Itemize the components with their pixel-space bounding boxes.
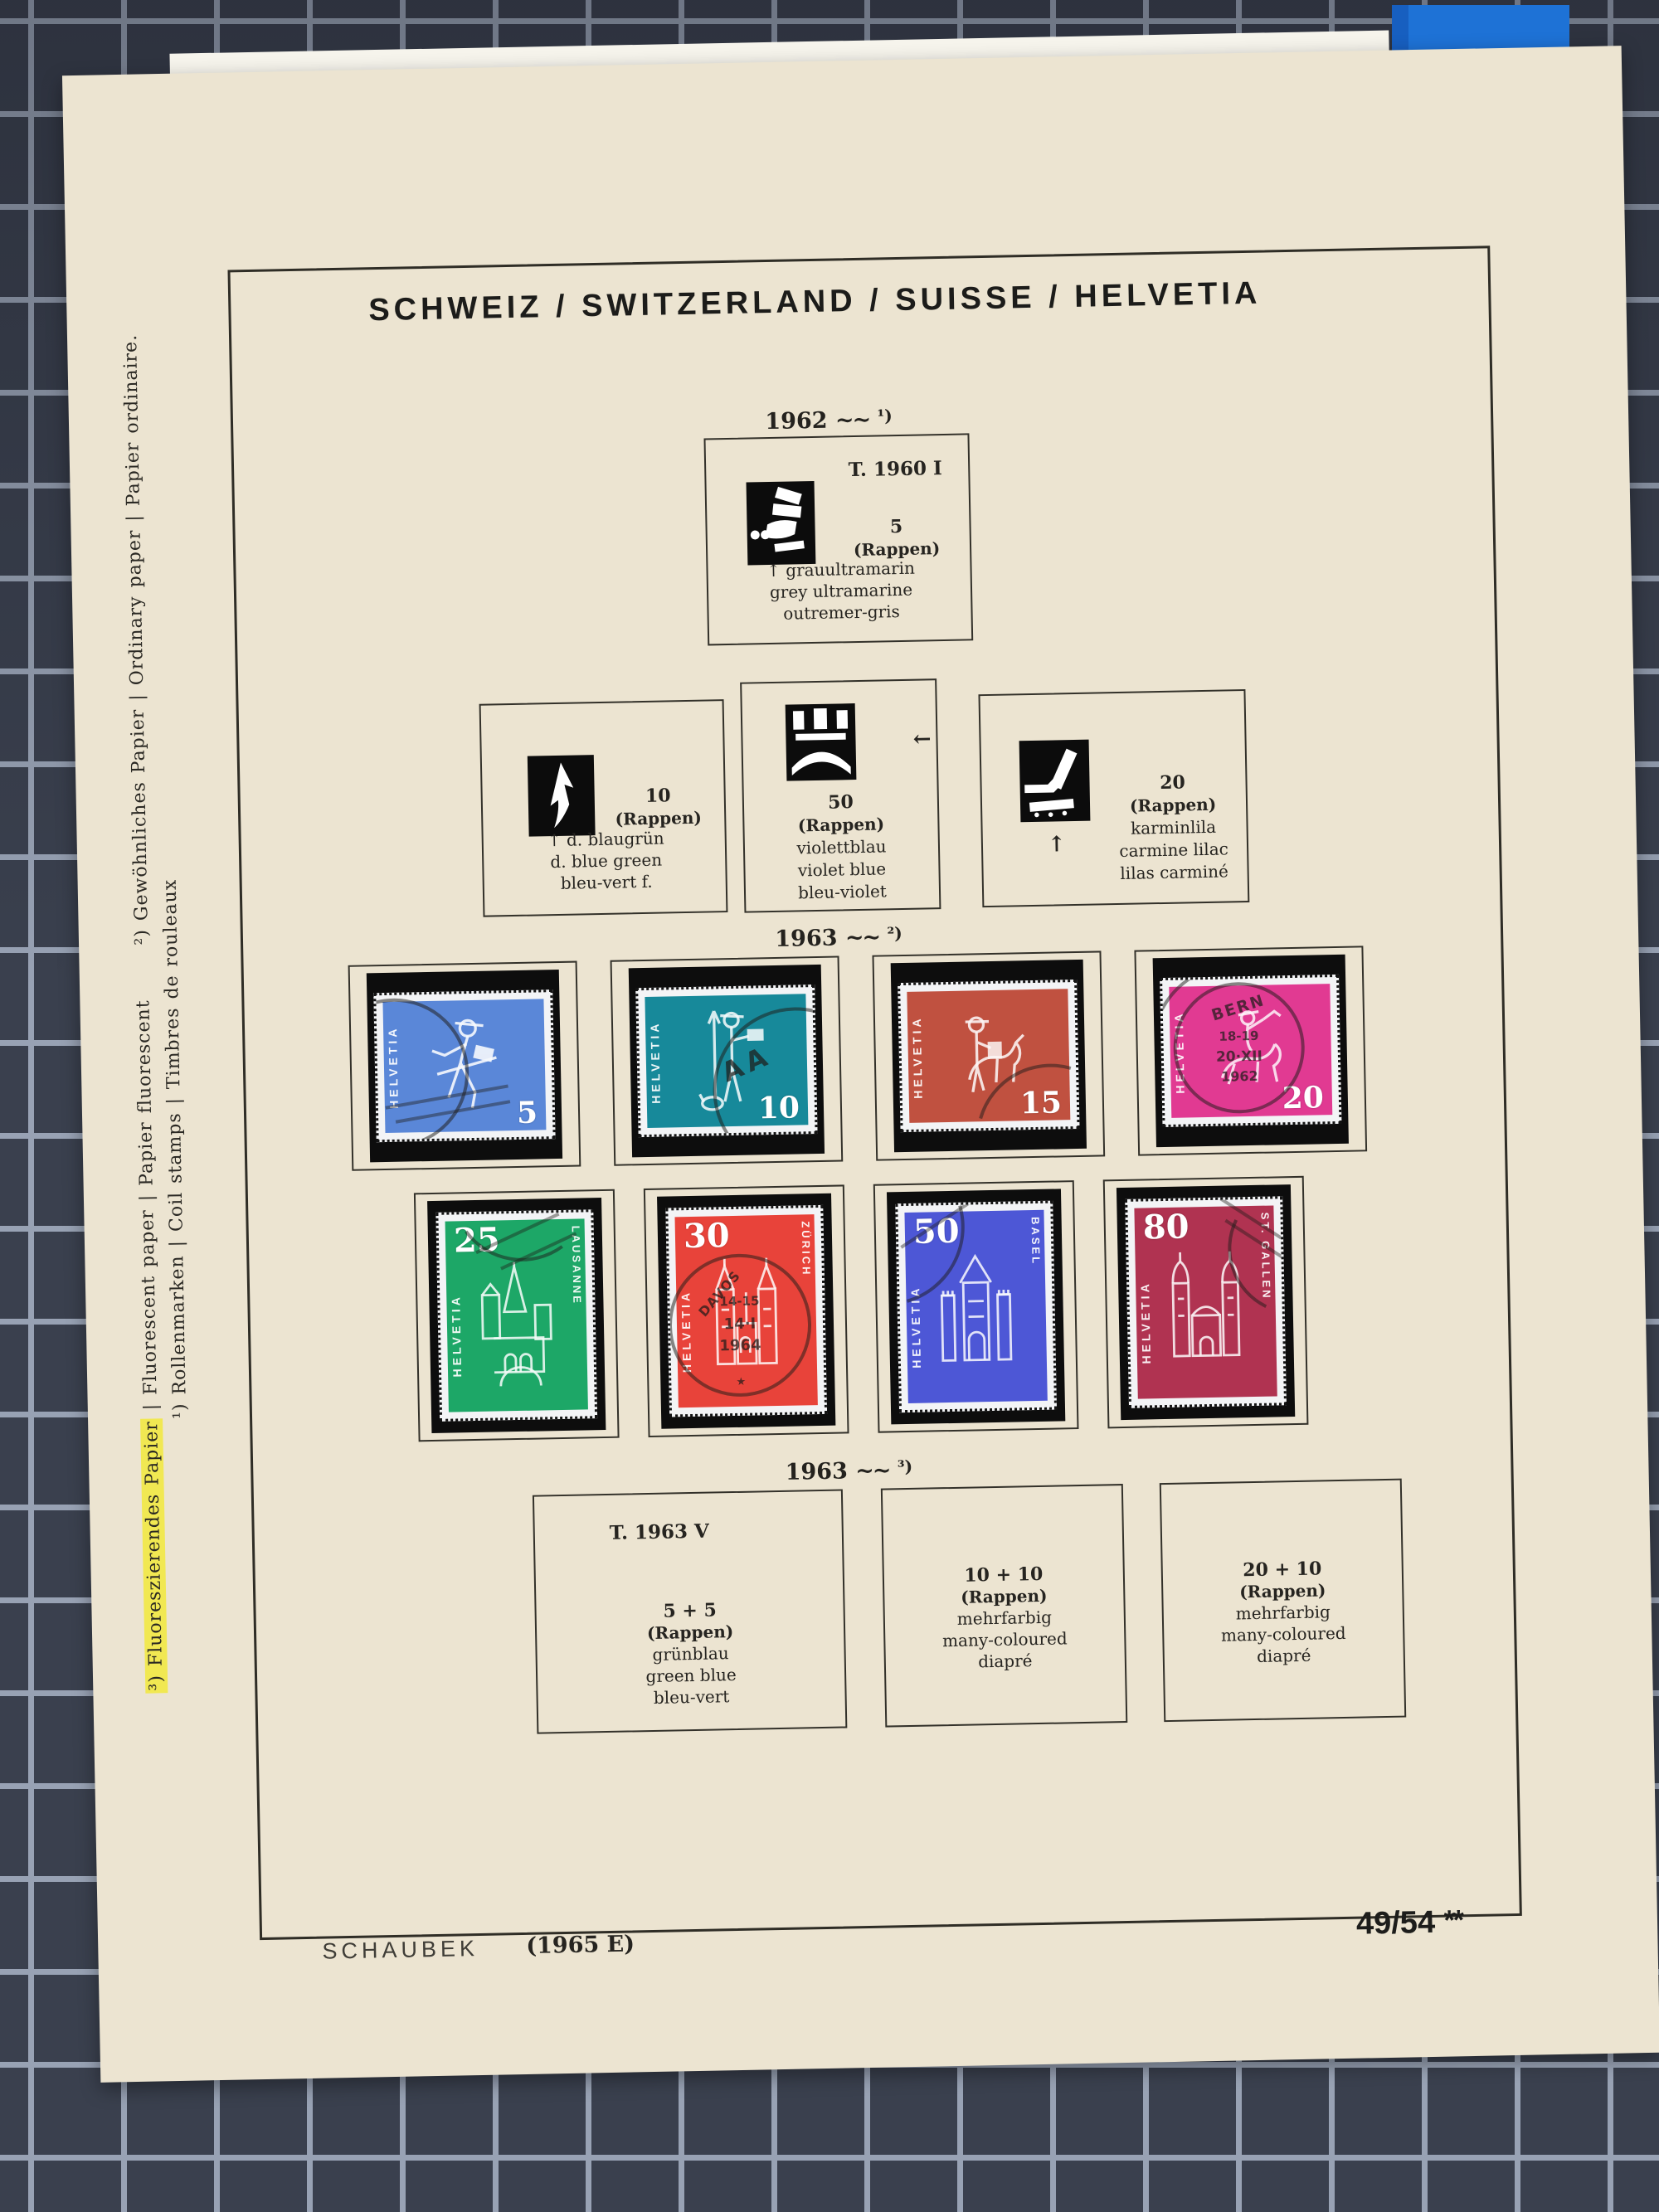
denomination: 20 [1106,771,1238,795]
color-en: carmine lilac [1107,838,1240,863]
value-and-colors: 20 + 10 (Rappen) mehrfarbig many-coloure… [1171,1557,1395,1669]
stamp-mount: HELVETIA 10 AA [629,965,825,1157]
footnote-spacer [148,953,148,991]
footnote-column-outer: ³) Fluoreszierendes Papier | Fluorescent… [120,334,167,1694]
left-arrow: ← [912,727,931,751]
denomination: 10 [599,784,718,809]
stamp-detail-thumbnail-bridge-icon [786,703,857,781]
up-arrow: ↑ [1048,832,1066,857]
stamp-30rp-red: 30 HELVETIA ZÜRICH DAVOS 14-15 14·I [665,1205,827,1417]
stamp-detail-thumbnail-spear-icon [528,755,596,837]
stamp-cell-50rp: 50 HELVETIA BASEL [873,1180,1079,1433]
denomination: 5 [517,1096,538,1130]
color-fr: diapré [894,1648,1117,1674]
stamp-mount: 30 HELVETIA ZÜRICH DAVOS 14-15 14·I [657,1194,835,1429]
stamp-cell-5rp: HELVETIA 5 [348,961,581,1171]
stamp-detail-thumbnail-letters-icon [747,481,816,566]
publisher-imprint: SCHAUBEK [322,1936,479,1965]
color-fr: bleu-vert f. [496,869,718,895]
stamp-10rp-teal: HELVETIA 10 AA [635,984,817,1137]
stamp-mount: HELVETIA 5 [367,970,562,1162]
page-frame: SCHWEIZ / SWITZERLAND / SUISSE / HELVETI… [227,246,1521,1940]
coil-wave-symbol: ~~ [845,925,880,951]
edition-label: (1965 E) [526,1931,635,1959]
stamp-5rp-blue: HELVETIA 5 [373,989,555,1142]
color-de: karminlila [1107,815,1239,840]
value-block: 10 (Rappen) [599,784,718,831]
stamp-15rp-red: HELVETIA 15 [898,980,1079,1132]
stamp-cell-10rp: HELVETIA 10 AA [611,955,844,1165]
motif-lausanne-cathedral [445,1243,588,1412]
year-1963: 1963 [775,926,838,952]
footnote-ref-1: ¹) [877,406,893,425]
year-1962: 1962 [765,408,828,435]
denomination: 5 [831,515,961,540]
stamp-cell-20rp: HELVETIA 20 BERN 18-19 20·XII 1962 [1134,946,1367,1155]
type-label: T. 1963 V [535,1519,784,1546]
stamp-20rp-magenta: HELVETIA 20 BERN 18-19 20·XII 1962 [1160,975,1341,1127]
color-fr: lilas carminé [1107,860,1240,885]
postmark-hours: 14-15 [671,1292,807,1310]
color-en: violet blue [753,857,930,882]
stamp-mount: 25 HELVETIA LAUSANNE [427,1198,606,1433]
page-number: 49/54 ** [1356,1904,1463,1942]
paper-stack: ³) Fluoreszierendes Papier | Fluorescent… [62,46,1659,2083]
color-description: ↑ grauultramarin grey ultramarine outrem… [722,557,959,625]
descriptor-box-50rp: ← 50 (Rappen) violettblau violet blue bl… [740,678,941,912]
value-and-colors: 10 + 10 (Rappen) mehrfarbig many-coloure… [893,1562,1117,1674]
descriptor-box-10rp: 10 (Rappen) ↑ d. blaugrün d. blue green … [479,699,728,917]
stamp-mount: HELVETIA 20 BERN 18-19 20·XII 1962 [1153,955,1349,1147]
footnote-ref-2: ²) [887,923,902,943]
stamp-cell-15rp: HELVETIA 15 [872,950,1105,1160]
stamp-25rp-green: 25 HELVETIA LAUSANNE [435,1209,597,1422]
descriptor-box-20plus10: 20 + 10 (Rappen) mehrfarbig many-coloure… [1160,1479,1406,1723]
footnote-ordinary: ²) Gewöhnliches Papier | Ordinary paper … [120,334,153,946]
stamp-50rp-blue: 50 HELVETIA BASEL [895,1201,1057,1413]
descriptor-box-5rp: T. 1960 I 5 (Rappen) ↑ grauultramarin gr… [703,433,973,645]
stamp-mount: HELVETIA 15 [891,960,1087,1152]
coil-wave-symbol: ~~ [855,1457,890,1484]
color-fr: bleu-vert [546,1684,836,1711]
coil-wave-symbol: ~~ [835,407,870,434]
color-description: ↑ d. blaugrün d. blue green bleu-vert f. [495,826,718,895]
page-title: SCHWEIZ / SWITZERLAND / SUISSE / HELVETI… [186,272,1444,332]
color-fr: outremer-gris [723,600,959,625]
footnote-ref-3: ³) [898,1456,913,1476]
postmark-date: 14·I [672,1314,808,1334]
denomination: 50 [752,790,929,815]
stamp-mount: 80 HELVETIA ST. GALLEN [1117,1184,1295,1420]
value-block: 5 (Rappen) [831,515,961,562]
footnote-fluorescent-rest: | Fluorescent paper | Papier fluorescent [133,999,161,1410]
type-label: T. 1960 I [830,457,960,482]
stamp-cell-25rp: 25 HELVETIA LAUSANNE [414,1189,620,1442]
value-block: 50 (Rappen) violettblau violet blue bleu… [752,790,932,905]
denomination-unit: (Rappen) [752,812,929,838]
value-and-colors: 5 + 5 (Rappen) grünblau green blue bleu-… [544,1597,836,1711]
stamp-cell-80rp: 80 HELVETIA ST. GALLEN [1103,1176,1309,1429]
stamp-detail-thumbnail-hand-icon [1019,740,1091,823]
footnote-column-inner: ¹) Rollenmarken | Coil stamps | Timbres … [160,879,191,1420]
album-page: ³) Fluoreszierendes Papier | Fluorescent… [62,46,1659,2083]
color-de: violettblau [753,834,930,860]
mint-marks: ** [1443,1904,1462,1936]
stamp-cell-30rp: 30 HELVETIA ZÜRICH DAVOS 14-15 14·I [644,1184,849,1437]
color-fr: bleu-violet [754,879,931,905]
year-1963: 1963 [785,1458,848,1485]
denomination-unit: (Rappen) [1107,793,1239,818]
value-block: 20 (Rappen) karminlila carmine lilac lil… [1106,771,1241,885]
descriptor-box-20rp: ↑ 20 (Rappen) karminlila carmine lilac l… [978,689,1249,907]
photo-of-stamp-album-page: ³) Fluoreszierendes Papier | Fluorescent… [0,0,1659,2212]
descriptor-box-10plus10: 10 + 10 (Rappen) mehrfarbig many-coloure… [881,1484,1127,1728]
footnote-fluorescent-highlight: ³) Fluoreszierendes Papier [140,1418,168,1694]
postmark-year: 1964 [672,1335,808,1355]
page-number-value: 49/54 [1356,1905,1436,1942]
stamp-mount: 50 HELVETIA BASEL [887,1189,1065,1424]
footnote-coil: ¹) Rollenmarken | Coil stamps | Timbres … [160,879,191,1420]
color-fr: diapré [1173,1643,1395,1669]
stamp-80rp-carmine: 80 HELVETIA ST. GALLEN [1125,1196,1287,1408]
descriptor-box-5plus5: T. 1963 V 5 + 5 (Rappen) grünblau green … [533,1490,847,1734]
